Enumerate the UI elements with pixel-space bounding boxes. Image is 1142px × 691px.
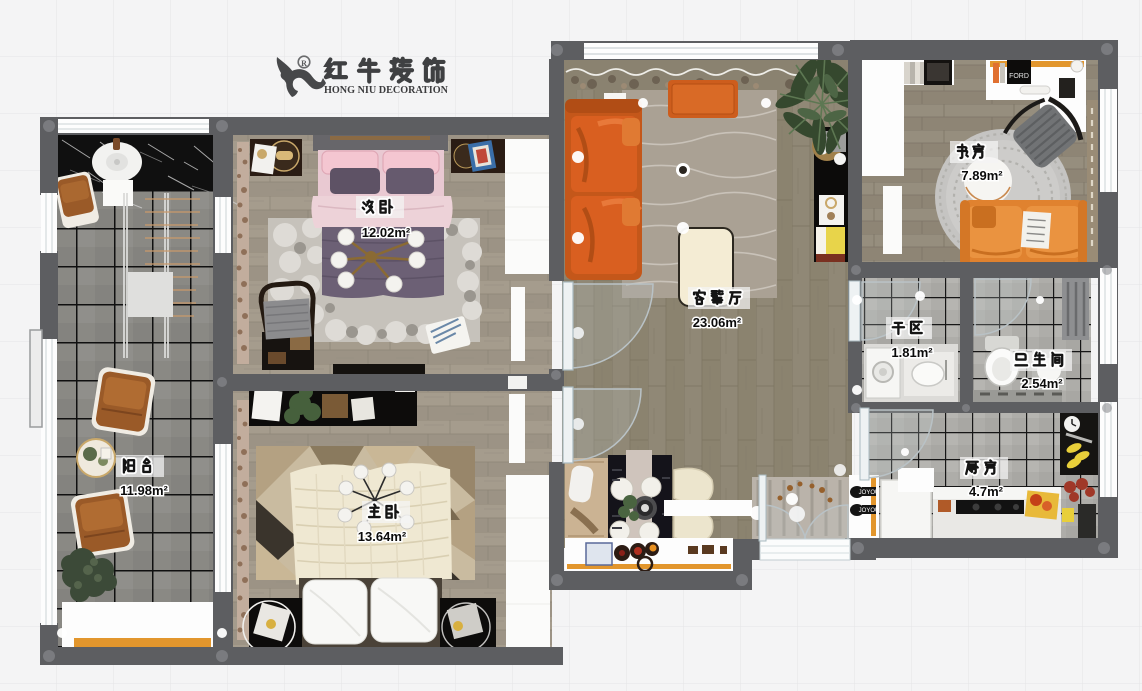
svg-text:4.7m²: 4.7m² [969,484,1004,499]
svg-text:FORD: FORD [1009,73,1029,80]
svg-text:23.06m²: 23.06m² [693,315,742,330]
svg-text:1.81m²: 1.81m² [891,345,933,360]
svg-text:7.89m²: 7.89m² [961,168,1003,183]
svg-text:JOYOU: JOYOU [859,508,880,514]
svg-text:13.64m²: 13.64m² [358,529,407,544]
svg-text:JOYOU: JOYOU [859,490,880,496]
svg-text:R: R [301,59,307,68]
svg-text:12.02m²: 12.02m² [362,225,411,240]
svg-text:HONG NIU DECORATION: HONG NIU DECORATION [324,85,449,96]
svg-text:2.54m²: 2.54m² [1021,376,1063,391]
svg-text:11.98m²: 11.98m² [120,483,168,498]
